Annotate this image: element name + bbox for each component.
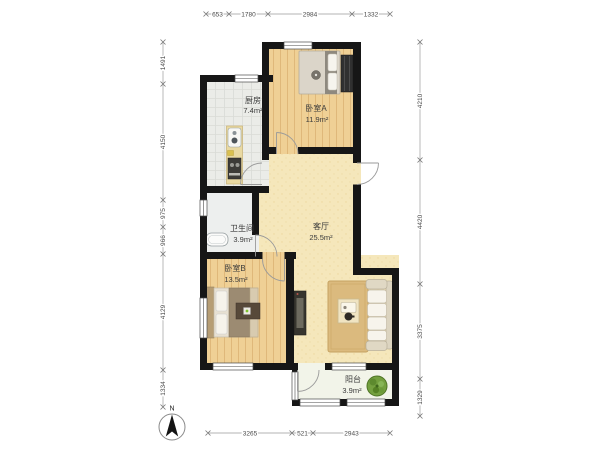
- dim-top-2: 2984: [303, 12, 318, 19]
- plant-leaf: [373, 387, 379, 393]
- label-balcony-area: 3.9m²: [342, 386, 362, 395]
- label-kitchen-area: 7.4m²: [243, 106, 263, 115]
- sofa-back: [386, 281, 393, 349]
- window-living-balcony: [332, 363, 366, 370]
- counter-item: [228, 151, 234, 156]
- sink-basin: [232, 138, 238, 144]
- dim-right-1: 4420: [417, 214, 424, 229]
- sofa-cushion: [368, 290, 387, 303]
- plant-leaf: [370, 379, 377, 386]
- label-bedroom-b-name: 卧室B: [224, 263, 245, 273]
- wall-living-right-upper: [353, 185, 361, 276]
- sofa-cushion: [368, 304, 387, 317]
- label-bedroom-a-area: 11.9m²: [306, 115, 329, 124]
- dim-left-3: 966: [160, 235, 167, 246]
- wardrobe: [341, 55, 353, 92]
- dim-bottom-2: 2943: [344, 431, 359, 438]
- window-bedroom-b-bottom: [213, 363, 253, 370]
- dim-left-4: 4129: [160, 304, 167, 319]
- coffee-table-tray: [341, 303, 356, 313]
- stove-burner: [230, 163, 234, 167]
- dim-top-0: 653: [212, 12, 223, 19]
- floor-plan-drawing: 653 1780 2984 1332 1491 4150 975 966 412…: [0, 0, 600, 450]
- wall-bedroom-a-bottom-right: [298, 147, 353, 154]
- wall-kitchen-bottom: [200, 186, 269, 193]
- dim-left-2: 975: [160, 208, 167, 219]
- window-kitchen: [235, 75, 258, 82]
- label-kitchen-name: 厨房: [245, 95, 261, 105]
- bathtub: [206, 233, 228, 246]
- kitchen-furniture: [227, 126, 243, 184]
- dim-right-2: 3375: [417, 324, 424, 339]
- bed-b-green-dot: [246, 310, 249, 313]
- window-bathroom: [200, 200, 207, 216]
- plant-leaf: [378, 381, 384, 387]
- bed-a-pillow: [328, 73, 337, 90]
- bed-b-pillow: [216, 291, 227, 311]
- sofa-armrest: [366, 341, 387, 351]
- stove: [228, 158, 241, 179]
- dim-bottom-0: 3265: [243, 431, 258, 438]
- compass-north-label: N: [169, 406, 174, 413]
- dim-right-0: 4210: [417, 93, 424, 108]
- wall-balcony-right: [392, 363, 399, 406]
- dim-top-1: 1780: [241, 12, 256, 19]
- wall-kitchen-bedroom-a: [262, 42, 269, 160]
- teapot: [345, 313, 353, 321]
- dim-left-1: 4150: [160, 134, 167, 149]
- wall-bedroom-b-right: [286, 252, 294, 370]
- tv-stand-accent: [297, 293, 299, 295]
- tray-item: [343, 306, 346, 309]
- sofa-cushion: [368, 317, 387, 330]
- wall-living-right-lower: [392, 268, 399, 370]
- tv-screen: [297, 298, 304, 328]
- wall-bedroom-a-bottom-left: [262, 147, 277, 154]
- sofa-cushion: [368, 331, 387, 341]
- teapot-spout: [352, 316, 355, 318]
- bed-b-pillow: [216, 314, 227, 334]
- plant-center: [376, 385, 379, 388]
- dim-top-3: 1332: [364, 12, 379, 19]
- dim-left-5: 1334: [160, 381, 167, 396]
- window-balcony-bottom-2: [347, 399, 385, 406]
- stove-burner: [236, 163, 240, 167]
- bedroom-a-furniture: [299, 51, 353, 94]
- bathroom-furniture: [206, 233, 228, 246]
- faucet-icon: [233, 131, 237, 135]
- label-bathroom-name: 卫生间: [230, 223, 254, 233]
- dim-left-0: 1491: [160, 55, 167, 70]
- label-balcony-name: 阳台: [345, 374, 361, 384]
- dim-right-3: 1329: [417, 390, 424, 405]
- bed-a-cushion-dot: [315, 74, 317, 76]
- bedroom-b-furniture: [205, 287, 260, 338]
- compass-icon: N: [159, 406, 185, 441]
- label-bedroom-a-name: 卧室A: [305, 103, 327, 113]
- window-bedroom-a: [284, 42, 312, 49]
- wall-bathroom-bottom: [200, 252, 263, 259]
- label-bathroom-area: 3.9m²: [233, 235, 253, 244]
- window-bedroom-b-left: [200, 298, 207, 338]
- window-balcony-bottom-1: [300, 399, 340, 406]
- label-living-name: 客厅: [313, 221, 329, 231]
- label-living-area: 25.5m²: [309, 233, 333, 242]
- label-bedroom-b-area: 13.5m²: [224, 275, 248, 284]
- bed-a-pillow: [328, 54, 337, 71]
- balcony-furniture: [367, 376, 387, 396]
- sofa-armrest: [366, 280, 387, 290]
- plant-leaf: [379, 388, 384, 393]
- wall-bedroom-a-right: [353, 42, 361, 163]
- dim-bottom-1: 521: [297, 431, 308, 438]
- stove-handle: [229, 173, 240, 176]
- floor-plan-canvas: 653 1780 2984 1332 1491 4150 975 966 412…: [0, 0, 600, 450]
